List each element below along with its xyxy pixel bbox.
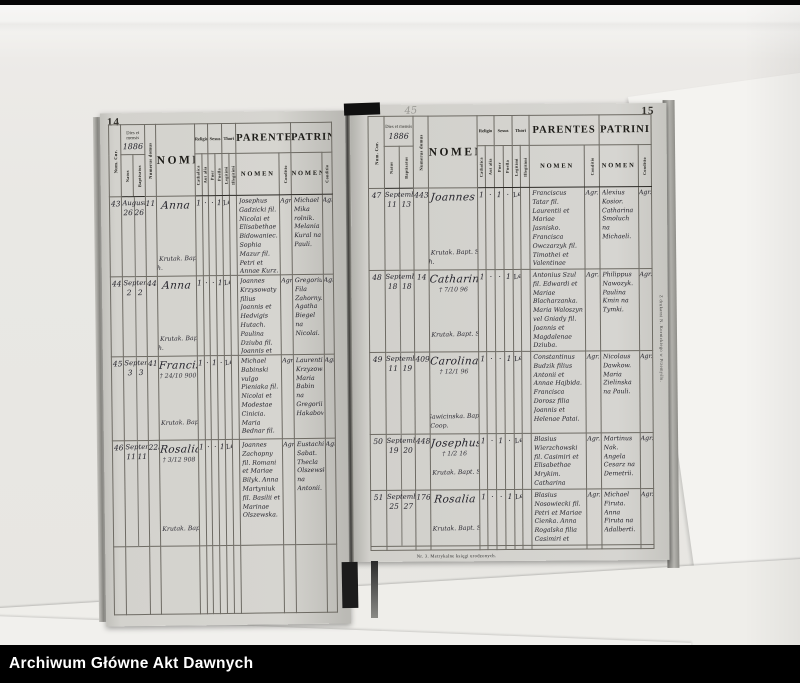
- book-clip-top: [344, 102, 380, 115]
- filler-cell: [371, 546, 387, 550]
- baptism-name: Rosalia: [431, 493, 480, 505]
- entry-days: 1119: [386, 364, 414, 374]
- year-handwritten: 1886: [384, 131, 412, 140]
- register-entry: 48September181814Catharina† 7/10 96Obst.…: [369, 269, 653, 353]
- filler-cell: [126, 546, 150, 614]
- col-header-baptisatus: Baptisatus: [133, 154, 145, 196]
- col-header-parentes-conditio: Conditio: [279, 153, 291, 195]
- baptisatus-day: 26: [134, 208, 144, 218]
- mark-puella: 1: [506, 489, 515, 545]
- register-entry: 45September3341Franciscus† 24/10 900Obst…: [111, 354, 335, 441]
- filler-cell: [488, 546, 497, 550]
- baptisatus-day: 19: [403, 364, 413, 374]
- filler-cell: [506, 545, 515, 549]
- natus-day: 2: [127, 289, 132, 299]
- col-header-patrini-conditio: Conditio: [322, 152, 333, 194]
- parents-condition: Agr.: [585, 269, 600, 351]
- entry-days: 1818: [385, 282, 413, 292]
- entry-name-cell: Carolina† 12/1 96Obst. Maria Sawicinska.…: [430, 352, 479, 434]
- baptism-name: Rosalia: [160, 443, 198, 456]
- godparents-names: Gregorius Fila Zahorny. Agatha Biegel na…: [295, 277, 323, 339]
- col-header-patrini: PATRINI: [599, 115, 651, 145]
- baptisatus-day: 20: [403, 446, 413, 456]
- parents-condition: Agr.: [281, 275, 294, 355]
- death-annotation: † 24/10 900: [159, 372, 196, 381]
- godparents-names: Laurentius Krzyzowaty. Maria Babin na Gr…: [296, 357, 324, 419]
- archive-viewer: 14 Num. Cur.Dies et mensis1886Numerus do…: [0, 0, 800, 683]
- parents-names: Michael Babinski vulgo Pieniaka fil. Nic…: [241, 357, 281, 433]
- entry-month: September: [124, 359, 146, 368]
- thori-legitimi-mark: Leg: [513, 271, 522, 282]
- register-entry: 49September1119409Carolina† 12/1 96Obst.…: [370, 351, 654, 435]
- col-header-sexus: Sexus: [208, 124, 222, 154]
- godparents-condition: Agr.: [640, 351, 654, 433]
- entry-date: Augustus2626: [122, 196, 146, 276]
- baptisatus-day: 2: [138, 288, 143, 298]
- natus-day: 11: [387, 200, 397, 210]
- col-header-patrini: PATRINI: [290, 122, 331, 152]
- header-row-sub: NatusBaptisatusCatholicaAut aliaPuerPuel…: [368, 145, 651, 189]
- godparents-cell: Philippus Nawozyk. Paulina Kmin na Tymki…: [600, 269, 640, 351]
- baptisatus-day: 11: [137, 452, 147, 462]
- mark-thori: Leg: [514, 433, 523, 489]
- filler-cell: [114, 547, 127, 615]
- entry-date: September1113: [384, 188, 414, 270]
- entry-number: 43: [109, 197, 122, 277]
- parents-cell: Blasius Wierzchowski fil. Casimiri et El…: [531, 433, 586, 489]
- godparents-condition: Agr.: [640, 489, 653, 545]
- entry-days: 1920: [387, 446, 415, 456]
- parents-condition: Agr.: [586, 351, 601, 433]
- parents-condition: Agr.: [587, 489, 602, 545]
- entry-house-number: 443: [414, 188, 429, 270]
- entry-number: 47: [368, 188, 384, 270]
- filler-cell: [641, 545, 654, 549]
- death-annotation: † 1/2 16: [431, 450, 479, 459]
- godparents-condition: Agr.: [322, 194, 333, 274]
- parents-names: Constantinus Budzik filius Antonii et An…: [533, 353, 584, 424]
- entry-name-cell: AnnaObst. Rosalia Krutak. Bapt. Stan. Be…: [157, 196, 196, 276]
- col-header-illegitimi: Illegitimi: [521, 145, 530, 187]
- parents-names: Joannes Krzysowaty filius Joannis et Hed…: [240, 277, 280, 353]
- parents-names: Antonius Szul fil. Edwardi et Mariae Bla…: [533, 271, 584, 347]
- entry-number: 49: [370, 352, 386, 434]
- register-entry: 51September2527176RosaliaObst. Rosalia K…: [371, 489, 654, 547]
- entry-name-cell: RosaliaObst. Rosalia Krutak. Bapt. Stan.…: [431, 490, 480, 546]
- entry-month: September: [385, 273, 413, 282]
- parents-condition: Agr.: [586, 433, 601, 489]
- natus-day: 26: [123, 209, 133, 219]
- register-entry: 46September1111228Rosalia† 3/12 908Obst.…: [112, 438, 336, 547]
- book-clip-bottom-2: [371, 561, 378, 618]
- baptism-name: Catharina: [429, 273, 478, 285]
- col-header-thori: Thori: [512, 115, 530, 145]
- baptism-register-table-right: Num. Cur.Dies et mensis1886Numerus domus…: [367, 114, 654, 551]
- filler-cell: [523, 545, 532, 549]
- baptism-name: Carolina: [430, 355, 479, 367]
- midwife-baptizer-note: Obst. Rosalia Krutak. Bapt. Stan. Bernat…: [430, 469, 479, 489]
- entry-date: September33: [124, 356, 148, 440]
- entry-days: 1111: [126, 452, 148, 462]
- col-header-numerus-domus: Numerus domus: [413, 116, 428, 188]
- filler-cell: [497, 546, 506, 550]
- godparents-names: Michael Firuta. Anna Firuta na Adalberti…: [604, 491, 639, 535]
- entry-month: September: [125, 443, 147, 452]
- baptisatus-day: 3: [139, 368, 144, 378]
- parents-condition: Agr.: [585, 187, 600, 269]
- natus-day: 3: [128, 369, 133, 379]
- midwife-baptizer-note: Obst. Maria Sawicinska. Bapt. Stan. Bern…: [430, 413, 479, 433]
- parents-cell: Josephus Gadzicki fil. Nicolai et Elisab…: [236, 195, 280, 276]
- col-header-sexus: Sexus: [494, 115, 512, 145]
- entry-month: September: [385, 191, 413, 200]
- godparents-cell: Martinus Nak. Angela Cesarz na Demetrii.: [601, 433, 640, 489]
- mark-aut-alia: ·: [488, 490, 497, 546]
- natus-day: 18: [388, 282, 398, 292]
- natus-day: 25: [389, 502, 399, 512]
- col-header-illegitimi: Illegitimi: [229, 153, 236, 195]
- entry-number: 51: [371, 490, 387, 546]
- col-header-legitimi: Legitimi: [222, 153, 229, 195]
- parents-cell: Joannes Zachopny fil. Romani et Mariae B…: [239, 439, 284, 546]
- book-clip-bottom: [342, 562, 359, 608]
- col-header-numerus-domus: Numerus domus: [144, 124, 156, 196]
- entry-month: Augustus: [122, 199, 144, 208]
- entry-number: 44: [110, 277, 123, 357]
- entry-name-cell: Rosalia† 3/12 908Obst. Rosalia Krutak. B…: [160, 440, 200, 546]
- thori-legitimi-mark: Leg: [514, 435, 523, 446]
- col-header-parentes: PARENTES: [236, 123, 291, 154]
- parents-cell: Joannes Krzysowaty filius Joannis et Hed…: [237, 275, 281, 356]
- godparents-condition: Agr.: [323, 274, 334, 354]
- entry-date: September1111: [125, 440, 149, 546]
- col-header-dies: Dies et mensis1886: [121, 124, 145, 154]
- dies-et-mensis-label: Dies et mensis: [122, 130, 144, 141]
- col-header-aut-alia: Aut alia: [486, 146, 495, 188]
- baptisatus-day: 13: [401, 200, 411, 210]
- parents-names: Blasius Nosowiecki fil. Petri et Mariae …: [534, 491, 585, 541]
- mark-puer: ·: [497, 490, 506, 546]
- baptisatus-day: 18: [402, 282, 412, 292]
- thori-legitimi-mark: Leg: [512, 189, 521, 200]
- thori-legitimi-mark: Leg: [514, 491, 523, 502]
- col-header-baptisatus: Baptisatus: [399, 146, 414, 188]
- entry-name-cell: Franciscus† 24/10 900Obst. Rosalia Kruta…: [159, 356, 198, 440]
- godparents-condition: Agr.: [325, 438, 337, 544]
- register-page-right: 15 45 Num. Cur.Dies et mensis1886Numerus…: [350, 103, 669, 562]
- entry-house-number: 409: [415, 352, 430, 434]
- filler-cell: [296, 544, 328, 612]
- col-header-patrini-conditio: Conditio: [638, 145, 651, 187]
- filler-cell: [241, 545, 285, 614]
- godparents-cell: Gregorius Fila Zahorny. Agatha Biegel na…: [292, 274, 324, 354]
- header-row-sub: NatusBaptisatusCatholicaAut aliaPuerPuel…: [109, 152, 332, 197]
- filler-cell: [149, 546, 161, 614]
- entry-date: September1119: [385, 352, 415, 434]
- register-entry: 47September1113443JoannesObst. Rosalia K…: [368, 187, 652, 271]
- col-header-patrini-nomen: NOMEN: [291, 152, 322, 194]
- mark-puer: 1: [496, 434, 505, 490]
- entry-date: September22: [123, 276, 147, 356]
- col-header-dies: Dies et mensis1886: [384, 116, 414, 146]
- col-header-parentes-nomen: NOMEN: [236, 153, 280, 196]
- mark-aut-alia: ·: [488, 434, 497, 490]
- parents-cell: Franciscus Tatar fil. Laurentii et Maria…: [530, 187, 585, 269]
- col-header-parentes-conditio: Conditio: [584, 145, 599, 187]
- death-annotation: † 7/10 96: [430, 286, 478, 295]
- col-header-natus: Natus: [121, 155, 133, 197]
- entry-house-number: 44: [146, 276, 159, 356]
- col-header-nomen: NOMEN: [156, 124, 195, 196]
- midwife-baptizer-note: Obst. Rosalia Krutak. Bapt. Stan. Bernat…: [431, 525, 480, 545]
- col-header-religio: Religio: [477, 116, 495, 146]
- filler-cell: [587, 545, 602, 549]
- filler-cell: [532, 545, 587, 549]
- natus-day: 11: [388, 364, 398, 374]
- filler-cell: [326, 544, 337, 612]
- entry-house-number: 176: [416, 490, 431, 546]
- filler-cell: [161, 546, 200, 614]
- entry-house-number: 41: [147, 356, 160, 440]
- mark-puella: ·: [505, 433, 514, 489]
- entry-date: September2527: [386, 490, 416, 546]
- dies-et-mensis-label: Dies et mensis: [384, 124, 412, 129]
- death-annotation: † 12/1 96: [430, 368, 478, 377]
- entry-number: 48: [369, 270, 385, 352]
- scan-photo: 14 Num. Cur.Dies et mensis1886Numerus do…: [0, 5, 800, 646]
- baptism-name: Anna: [157, 199, 195, 212]
- death-annotation: † 3/12 908: [160, 456, 197, 465]
- midwife-baptizer-note: Obst. Rosalia Krutak. Bapt. Stan. Bernat…: [159, 418, 198, 439]
- archive-name: Archiwum Główne Akt Dawnych: [9, 655, 253, 673]
- col-header-religio: Religio: [194, 124, 208, 154]
- entry-name-cell: AnnaObst. Rosalia Krutak. Bapt. Stan. Be…: [158, 276, 197, 356]
- col-header-legitimi: Legitimi: [512, 145, 521, 187]
- mark-illegitimi: [523, 433, 532, 489]
- entry-days: 33: [124, 368, 146, 378]
- parents-cell: Antonius Szul fil. Edwardi et Mariae Bla…: [530, 269, 585, 351]
- register-entry: 44September2244AnnaObst. Rosalia Krutak.…: [110, 274, 334, 357]
- midwife-baptizer-note: Obst. Rosalia Krutak. Bapt. Stan. Bernat…: [160, 524, 200, 545]
- godparents-names: Eustachius Sabat. Thecla Olszewska na An…: [297, 441, 324, 494]
- parents-cell: Blasius Nosowiecki fil. Petri et Mariae …: [532, 489, 587, 545]
- godparents-names: Philippus Nawozyk. Paulina Kmin na Tymki…: [602, 271, 637, 315]
- parents-names: Josephus Gadzicki fil. Nicolai et Elisab…: [239, 197, 279, 273]
- baptism-name: Josephus: [430, 437, 479, 449]
- register-entry: 50September1920448Josephus† 1/2 16Obst. …: [370, 433, 653, 491]
- col-header-parentes: PARENTES: [529, 115, 599, 145]
- parents-cell: Michael Babinski vulgo Pieniaka fil. Nic…: [238, 355, 282, 440]
- entry-house-number: 117: [145, 196, 158, 276]
- mark-catholica: 1: [479, 490, 488, 546]
- printer-edge-note: Z drukarni N. Kornickiego w Przemyślu.: [659, 295, 665, 382]
- entry-house-number: 14: [414, 270, 429, 352]
- godparents-names: Alexius Kosior. Catharina Smoluch na Mic…: [602, 189, 637, 242]
- godparents-condition: Agr.: [638, 187, 652, 269]
- printer-footer-note: Nr. 3. Metrykalne księgi urodzonych.: [417, 553, 497, 559]
- midwife-baptizer-note: Obst. Rosalia Krutak. Bapt. Stan. Bernat…: [158, 334, 197, 355]
- entry-date: September1920: [386, 434, 416, 490]
- baptisatus-day: 27: [404, 502, 414, 512]
- filler-cell: [431, 546, 480, 550]
- godparents-cell: Laurentius Krzyzowaty. Maria Babin na Gr…: [293, 354, 325, 438]
- godparents-condition: Agr.: [640, 433, 653, 489]
- entry-name-cell: JoannesObst. Rosalia Krutak. Bapt. Stan.…: [428, 188, 477, 270]
- midwife-baptizer-note: Obst. Rosalia Krutak. Bapt. Stan. Bernat…: [157, 254, 196, 275]
- entry-house-number: 448: [415, 434, 430, 490]
- filler-cell: [284, 545, 296, 613]
- entry-number: 50: [370, 434, 386, 490]
- parents-names: Joannes Zachopny fil. Romani et Mariae B…: [242, 441, 282, 517]
- godparents-cell: Eustachius Sabat. Thecla Olszewska na An…: [294, 438, 326, 544]
- godparents-condition: Agr.: [639, 269, 653, 351]
- mark-illegitimi: [523, 489, 532, 545]
- entry-days: 2626: [123, 208, 145, 218]
- filler-cell: [416, 546, 431, 550]
- filler-cell: [387, 546, 416, 550]
- filler-cell: [480, 546, 489, 550]
- thori-legitimi-mark: Leg: [513, 353, 522, 364]
- baptism-name: Anna: [158, 279, 196, 292]
- header-row-groups: Num. Cur.Dies et mensis1886Numerus domus…: [109, 122, 332, 155]
- godparents-names: Martinus Nak. Angela Cesarz na Demetrii.: [604, 435, 639, 479]
- col-header-patrini-nomen: NOMEN: [599, 145, 638, 187]
- col-header-nomen: NOMEN: [428, 116, 477, 188]
- col-header-num-cur: Num. Cur.: [368, 116, 384, 188]
- viewer-footer-bar: Archiwum Główne Akt Dawnych: [0, 645, 800, 683]
- entry-month: September: [387, 437, 415, 446]
- godparents-cell: Nicolaus Dawkow. Maria Zielinska na Paul…: [600, 351, 640, 433]
- filler-row: [114, 544, 338, 615]
- col-header-num-cur: Num. Cur.: [109, 125, 122, 197]
- mark-catholica: 1: [479, 434, 488, 490]
- year-handwritten: 1886: [122, 142, 144, 151]
- col-header-thori: Thori: [222, 123, 236, 153]
- header-row-groups: Num. Cur.Dies et mensis1886Numerus domus…: [368, 115, 651, 147]
- godparents-names: Michael Mika rolnik. Melania Kural na Pa…: [294, 197, 321, 250]
- baptism-name: Joannes: [428, 191, 477, 203]
- godparents-condition: Agr.: [324, 354, 335, 438]
- filler-cell: [602, 545, 641, 549]
- natus-day: 11: [126, 453, 136, 463]
- entry-name-cell: Catharina† 7/10 96Obst. Rosalia Krutak. …: [429, 270, 478, 352]
- entry-days: 2527: [387, 502, 415, 512]
- entry-days: 22: [124, 288, 146, 298]
- parents-cell: Constantinus Budzik filius Antonii et An…: [531, 351, 586, 433]
- col-header-parentes-nomen: NOMEN: [529, 145, 584, 187]
- register-entry: 43Augustus2626117AnnaObst. Rosalia Kruta…: [109, 194, 333, 277]
- parents-condition: Agr.: [282, 355, 295, 439]
- parents-names: Franciscus Tatar fil. Laurentii et Maria…: [532, 189, 583, 265]
- parents-condition: Agr.: [280, 195, 293, 275]
- midwife-baptizer-note: Obst. Rosalia Krutak. Bapt. Stan. Bernat…: [429, 331, 478, 351]
- mark-thori: Leg: [514, 489, 523, 545]
- col-header-natus: Natus: [384, 146, 399, 188]
- godparents-cell: Michael Firuta. Anna Firuta na Adalberti…: [601, 489, 640, 545]
- midwife-baptizer-note: Obst. Rosalia Krutak. Bapt. Stan. Bernat…: [428, 249, 477, 269]
- natus-day: 19: [389, 446, 399, 456]
- col-header-catholica: Catholica: [477, 146, 486, 188]
- filler-cell: [515, 545, 524, 549]
- entry-days: 1113: [385, 200, 413, 210]
- entry-number: 45: [111, 357, 125, 441]
- baptism-name: Franciscus: [159, 359, 197, 372]
- entry-date: September1818: [385, 270, 415, 352]
- parents-names: Blasius Wierzchowski fil. Casimiri et El…: [534, 435, 585, 485]
- entry-month: September: [387, 493, 415, 502]
- godparents-names: Nicolaus Dawkow. Maria Zielinska na Paul…: [603, 353, 638, 397]
- entry-month: September: [386, 355, 414, 364]
- godparents-cell: Alexius Kosior. Catharina Smoluch na Mic…: [599, 187, 639, 269]
- entry-month: September: [123, 279, 145, 288]
- baptism-register-table-left: Num. Cur.Dies et mensis1886Numerus domus…: [108, 122, 338, 616]
- entry-name-cell: Josephus† 1/2 16Obst. Rosalia Krutak. Ba…: [430, 434, 479, 490]
- godparents-cell: Michael Mika rolnik. Melania Kural na Pa…: [291, 194, 323, 274]
- register-page-left: 14 Num. Cur.Dies et mensis1886Numerus do…: [100, 111, 351, 627]
